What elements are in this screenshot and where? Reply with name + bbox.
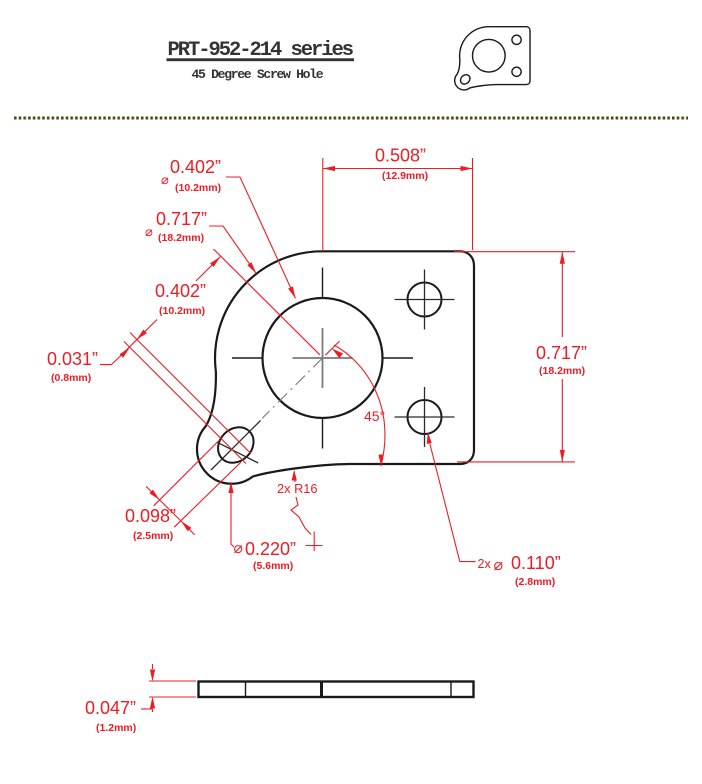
- svg-text:(1.2mm): (1.2mm): [96, 722, 136, 734]
- svg-text:(2.5mm): (2.5mm): [133, 530, 173, 542]
- svg-text:45°: 45°: [364, 408, 385, 424]
- svg-text:0.031”: 0.031”: [47, 349, 98, 369]
- svg-text:0.717”: 0.717”: [156, 209, 207, 229]
- svg-text:⌀: ⌀: [161, 172, 169, 187]
- svg-text:2x: 2x: [478, 557, 492, 571]
- svg-text:⌀: ⌀: [145, 224, 153, 239]
- svg-text:0.402”: 0.402”: [170, 157, 221, 177]
- svg-text:0.402”: 0.402”: [155, 281, 206, 301]
- svg-text:(18.2mm): (18.2mm): [539, 365, 585, 377]
- svg-text:(18.2mm): (18.2mm): [158, 232, 204, 244]
- svg-text:(12.9mm): (12.9mm): [382, 170, 428, 182]
- svg-text:0.047”: 0.047”: [85, 698, 136, 718]
- svg-text:(10.2mm): (10.2mm): [159, 305, 205, 317]
- svg-text:⌀: ⌀: [234, 540, 244, 557]
- svg-text:(10.2mm): (10.2mm): [175, 182, 221, 194]
- svg-text:0.110”: 0.110”: [511, 553, 561, 573]
- svg-text:(2.8mm): (2.8mm): [515, 576, 555, 588]
- svg-text:45 Degree Screw Hole: 45 Degree Screw Hole: [192, 67, 324, 82]
- svg-text:(0.8mm): (0.8mm): [51, 372, 91, 384]
- svg-text:(5.6mm): (5.6mm): [253, 560, 293, 572]
- svg-text:2x R16: 2x R16: [277, 481, 318, 496]
- svg-text:0.220”: 0.220”: [245, 539, 296, 559]
- svg-text:0.508”: 0.508”: [375, 146, 426, 166]
- svg-text:0.717”: 0.717”: [536, 343, 587, 363]
- svg-text:⌀: ⌀: [494, 557, 504, 574]
